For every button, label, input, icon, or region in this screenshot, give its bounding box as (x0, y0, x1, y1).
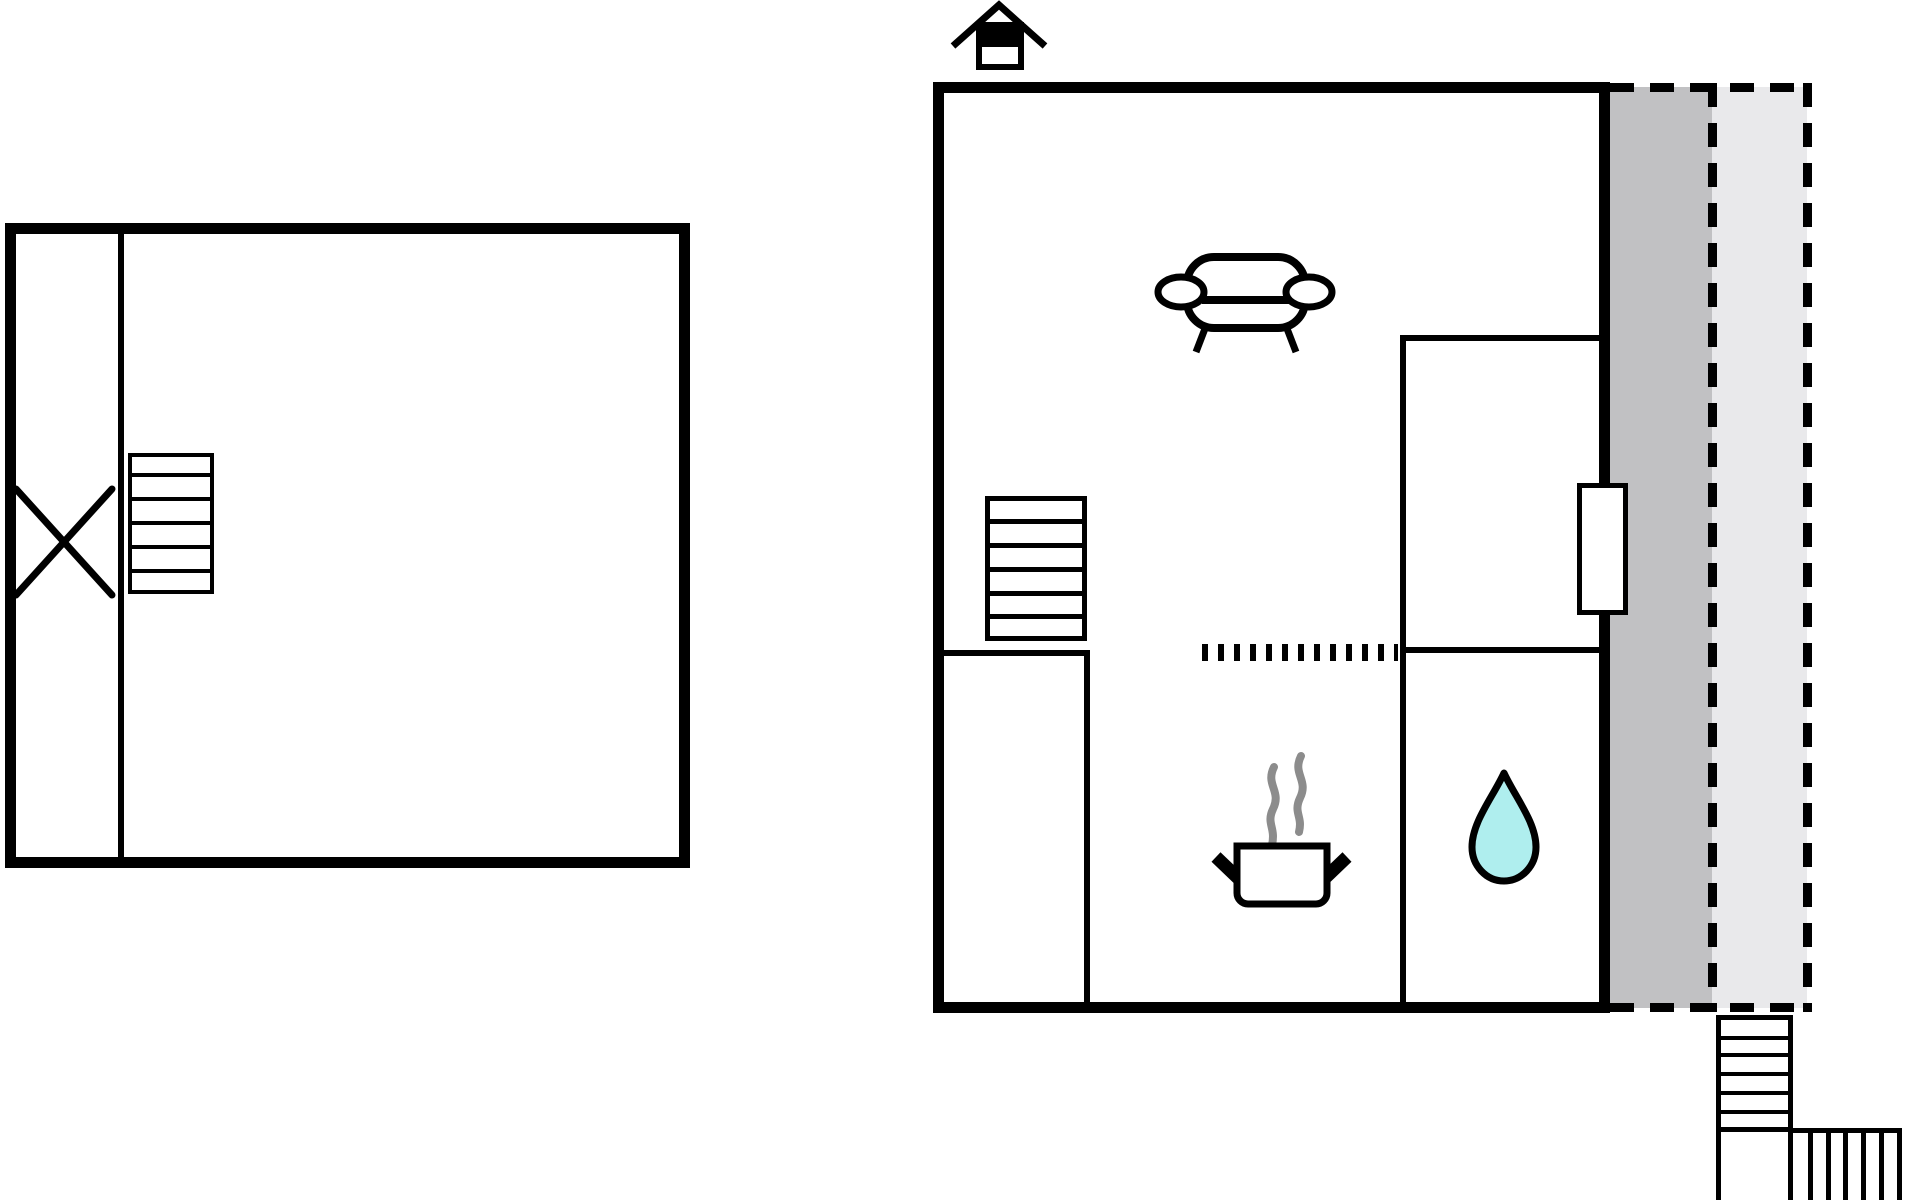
annex-corridor-wall (118, 234, 124, 857)
stair-tread-line (1808, 1133, 1813, 1200)
stair-tread-line (990, 567, 1082, 572)
north-house-icon (953, 5, 1045, 67)
stair-tread-line (1721, 1072, 1788, 1076)
annex-building-outline (5, 223, 690, 868)
stair-tread-line (990, 543, 1082, 548)
stair-tread-line (1861, 1133, 1866, 1200)
bedroom-east-wall (1084, 650, 1090, 1002)
hall-bathroom-divider-wall (1406, 647, 1599, 653)
exterior-stairs-lower-flight-end-wall (1897, 1128, 1902, 1200)
terrace-dashed-border-right (1803, 83, 1812, 1012)
hall-north-wall (1400, 335, 1599, 341)
stair-tread-line (132, 473, 210, 477)
stair-tread-line (990, 591, 1082, 596)
hall-bathroom-west-wall (1400, 335, 1406, 1002)
stair-tread-line (990, 614, 1082, 619)
stair-tread-line (990, 519, 1082, 524)
stair-tread-line (1721, 1110, 1788, 1114)
stair-landing-west-wall (1716, 1128, 1721, 1200)
stair-tread-line (132, 569, 210, 573)
stair-landing-east-wall (1788, 1128, 1793, 1200)
stair-tread-line (132, 545, 210, 549)
stair-tread-line (1843, 1133, 1848, 1200)
stair-tread-line (1879, 1133, 1884, 1200)
stair-tread-line (1721, 1091, 1788, 1095)
open-threshold-dotted-line (1202, 644, 1398, 661)
stair-tread-line (1721, 1053, 1788, 1057)
stair-tread-line (1826, 1133, 1831, 1200)
terrace-zone-divider-dashed (1708, 83, 1717, 1012)
terrace-door (1577, 483, 1628, 615)
stair-tread-line (132, 497, 210, 501)
stair-tread-line (132, 521, 210, 525)
floor-plan-canvas (0, 0, 1920, 1200)
bedroom-north-wall (944, 650, 1090, 656)
stair-tread-line (1721, 1036, 1788, 1040)
terrace-open-zone (1712, 87, 1807, 1008)
